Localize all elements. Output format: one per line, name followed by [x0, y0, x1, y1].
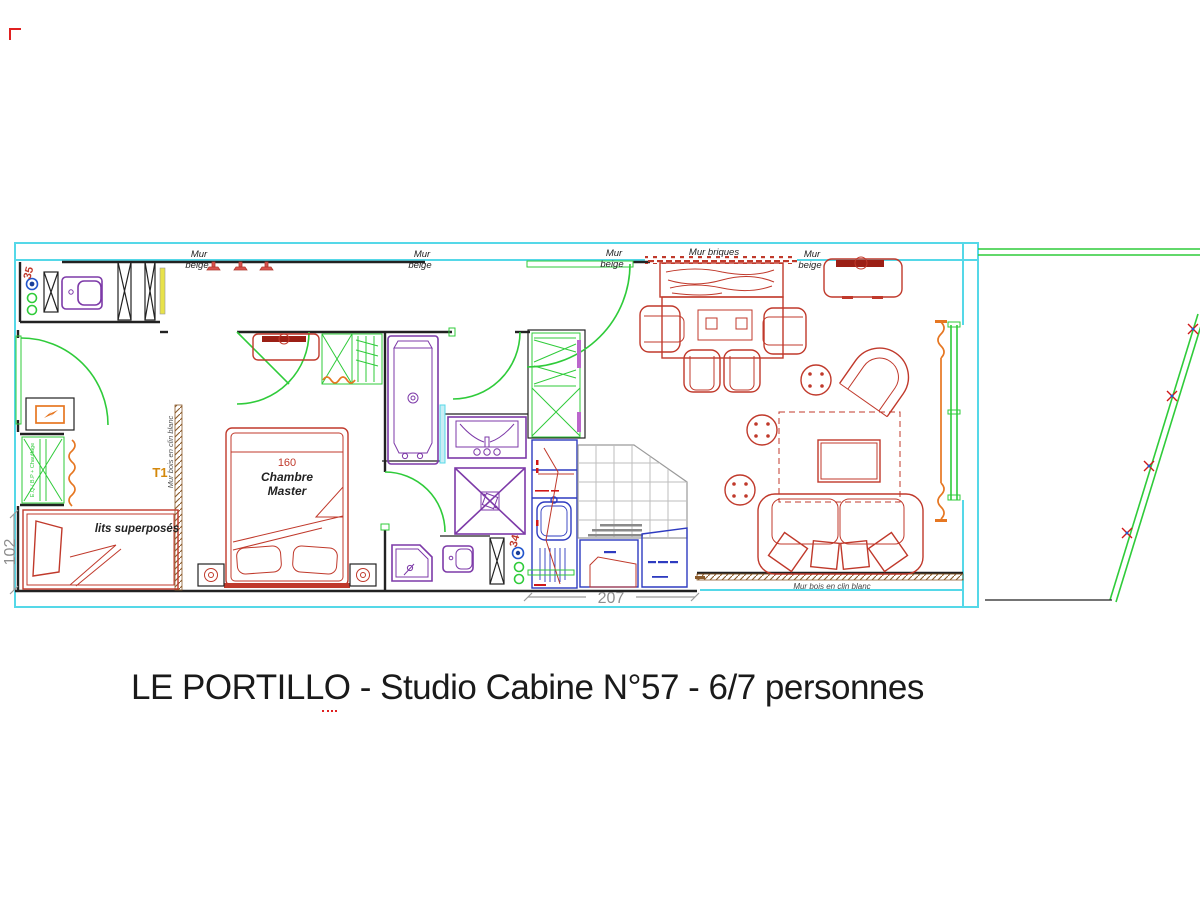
- sofa: [758, 494, 923, 574]
- bedside-table: [350, 564, 376, 586]
- round-stool: [725, 475, 755, 505]
- dimension-left: 102: [2, 539, 19, 566]
- shower-tray: [455, 468, 525, 534]
- svg-text:Mur briques: Mur briques: [689, 247, 739, 258]
- round-stool: [801, 365, 831, 395]
- svg-text:Mur: Mur: [414, 249, 431, 260]
- equipment-note: E.Q / B.P + Chauffage: [30, 443, 36, 497]
- plumbing-lines: [538, 448, 574, 584]
- glass-screen: [440, 405, 445, 463]
- switch-icon: [28, 294, 37, 303]
- bunk-room: lits superposés: [23, 510, 179, 589]
- switch-icon: [28, 306, 37, 315]
- dimensions: 207 102 35 34: [2, 266, 699, 607]
- cushion: [869, 533, 908, 572]
- plan-title: LE PORTILLO - Studio Cabine N°57 - 6/7 p…: [131, 668, 924, 708]
- switch-icon: [515, 563, 524, 572]
- annotation-marks-blue: [604, 551, 678, 578]
- svg-text:beige: beige: [408, 260, 431, 271]
- plinth: [528, 570, 574, 575]
- hall-closet: [532, 333, 581, 437]
- bar-counter: [578, 440, 690, 540]
- switch-icon: [515, 575, 524, 584]
- curtain: [69, 440, 75, 506]
- right-window: [935, 320, 960, 522]
- fridge: [642, 528, 687, 587]
- tv-console: [824, 257, 902, 299]
- bottom-wall-note: Mur bois en clin blanc: [793, 582, 870, 591]
- svg-text:beige: beige: [798, 260, 821, 271]
- balcony: [978, 249, 1200, 602]
- wc-room: [27, 272, 103, 315]
- svg-text:beige: beige: [185, 260, 208, 271]
- toilet-2: [443, 546, 473, 572]
- dining-area: [640, 263, 806, 392]
- floor-plan-page: E.Q / B.P + Chauffage lits superposés T1…: [0, 0, 1200, 900]
- floor-plan-canvas: E.Q / B.P + Chauffage lits superposés T1…: [0, 0, 1200, 900]
- rug: [779, 412, 900, 502]
- cushion: [769, 533, 808, 572]
- closet-strip: [577, 340, 581, 368]
- living-room: [725, 257, 923, 574]
- dining-chair: [724, 350, 760, 392]
- bunk-room-label: lits superposés: [95, 523, 179, 535]
- pillow: [292, 545, 338, 574]
- utility-closet: E.Q / B.P + Chauffage: [20, 398, 75, 506]
- curtain: [938, 322, 944, 519]
- vanity-sink: [448, 417, 526, 458]
- coffee-table: [818, 440, 880, 482]
- kitchen-sink: [537, 497, 571, 582]
- lightning-icon: [44, 410, 58, 418]
- wall-light-icons: [207, 262, 273, 270]
- bench: [660, 263, 783, 297]
- spellcheck-squiggle: [322, 705, 337, 712]
- svg-text:beige: beige: [600, 259, 623, 270]
- dimension-bottom: 207: [598, 590, 625, 607]
- balcony-railing: [1110, 314, 1198, 600]
- svg-text:Mur: Mur: [191, 249, 208, 260]
- bed-size-label: 160: [278, 457, 296, 469]
- bedside-table: [198, 564, 224, 586]
- left-wall-note: Mur bois en clin blanc: [166, 415, 175, 488]
- appliance-box: [580, 540, 638, 587]
- dimension-shower-wc: 34: [508, 533, 523, 549]
- room-label-line1: Chambre: [261, 470, 313, 484]
- corner-shower: [392, 545, 432, 581]
- corner-mark: [10, 29, 21, 40]
- pillow: [236, 545, 282, 574]
- svg-text:Mur: Mur: [606, 248, 623, 259]
- armchair: [840, 337, 920, 417]
- dining-chair: [684, 350, 720, 392]
- door-panel: [160, 268, 165, 314]
- cushion: [811, 541, 840, 570]
- room-label-line2: Master: [268, 484, 308, 498]
- interior-walls: [15, 262, 963, 592]
- railing-post-markers: [1122, 324, 1198, 538]
- master-bedroom: 160 Chambre Master: [198, 334, 382, 588]
- appliance-outline: [590, 557, 636, 587]
- kitchen: [528, 440, 705, 588]
- dining-armchair: [763, 308, 806, 354]
- cushion: [841, 541, 870, 570]
- svg-text:Mur: Mur: [804, 249, 821, 260]
- round-stool: [747, 415, 777, 445]
- threshold: [695, 576, 705, 579]
- closet-strip: [577, 412, 581, 432]
